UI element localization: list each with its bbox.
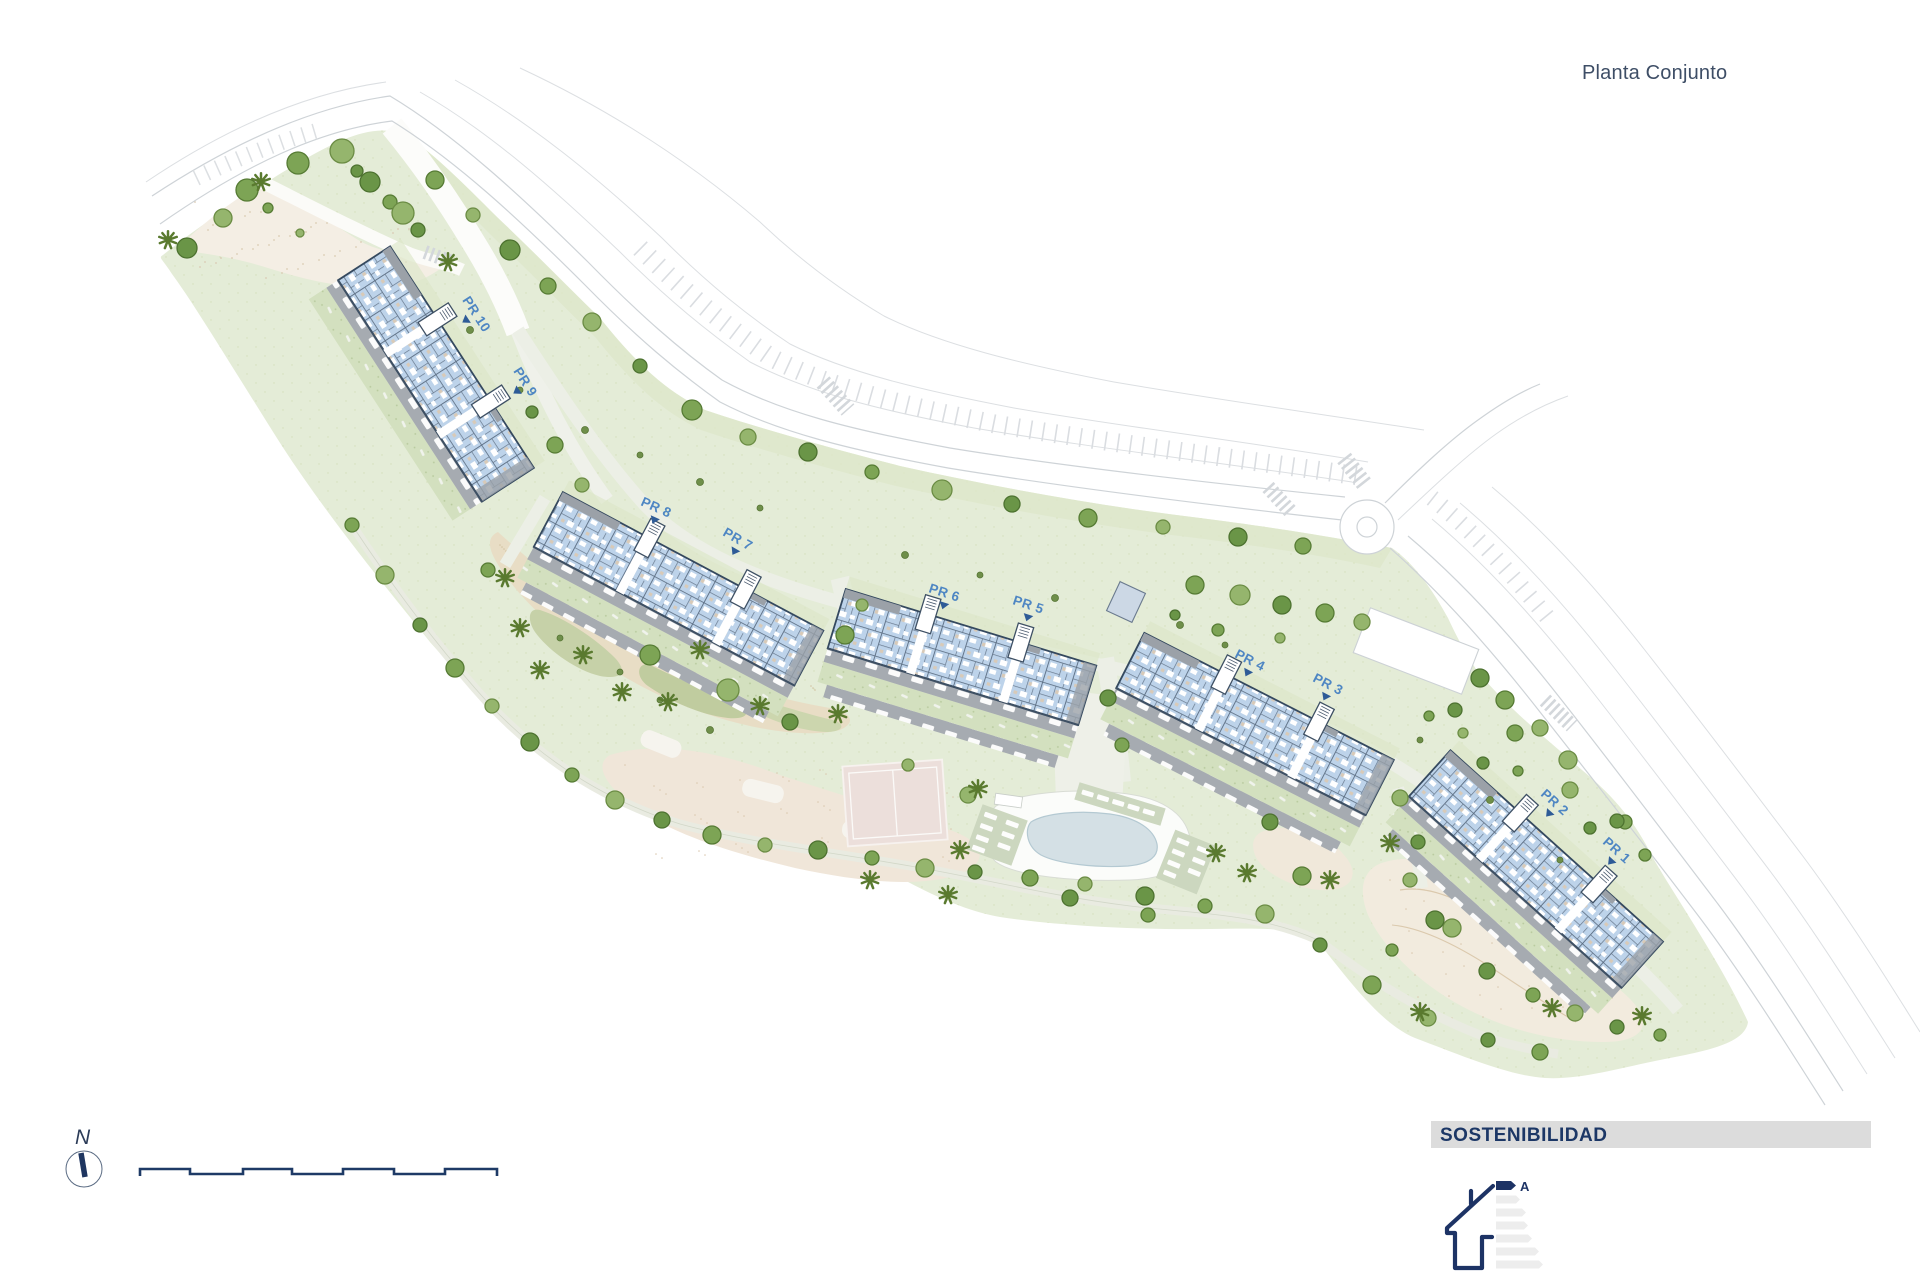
svg-text:SOSTENIBILIDAD: SOSTENIBILIDAD <box>1440 1125 1607 1146</box>
svg-text:Planta Conjunto: Planta Conjunto <box>1582 62 1727 84</box>
svg-text:N: N <box>75 1126 91 1149</box>
svg-text:A: A <box>1520 1179 1530 1194</box>
